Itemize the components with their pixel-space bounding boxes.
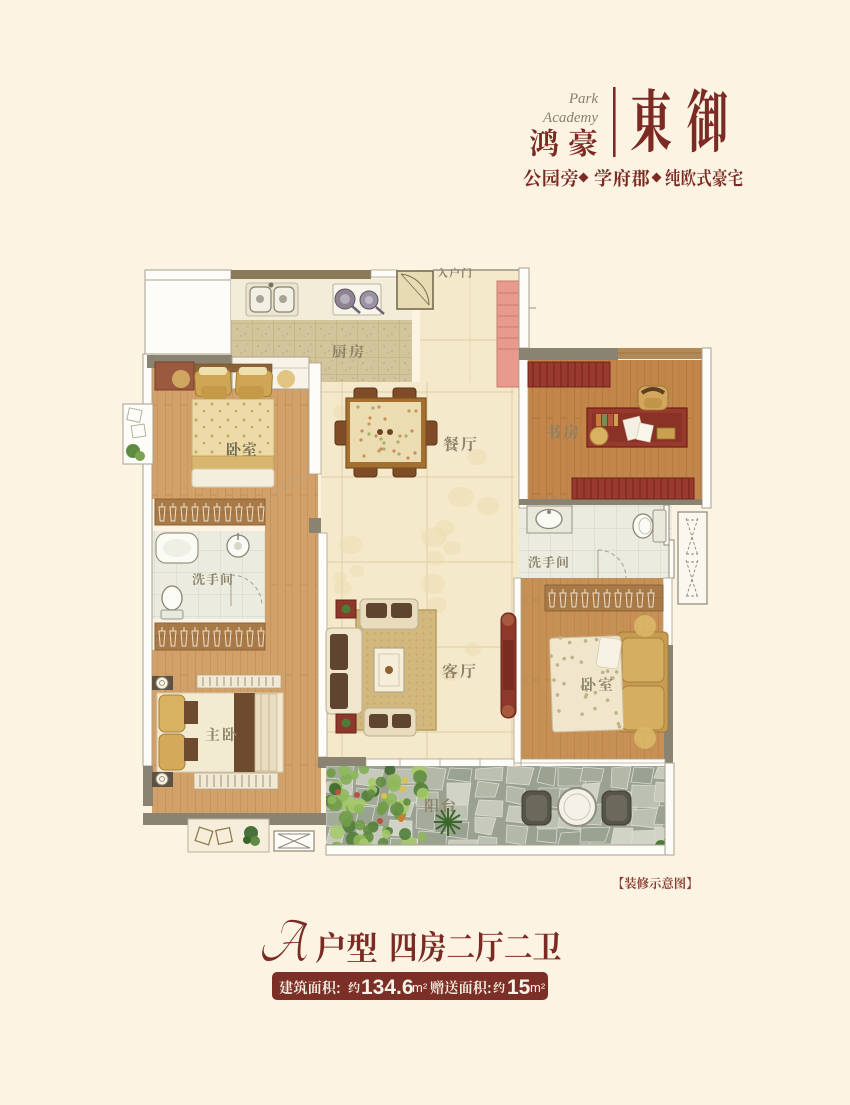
- svg-text:134.6: 134.6: [361, 976, 414, 999]
- svg-text:Academy: Academy: [542, 110, 598, 126]
- svg-text:15: 15: [507, 976, 531, 999]
- svg-text:m²: m²: [530, 980, 546, 995]
- svg-text:m²: m²: [412, 980, 428, 995]
- svg-text:Park: Park: [568, 91, 599, 107]
